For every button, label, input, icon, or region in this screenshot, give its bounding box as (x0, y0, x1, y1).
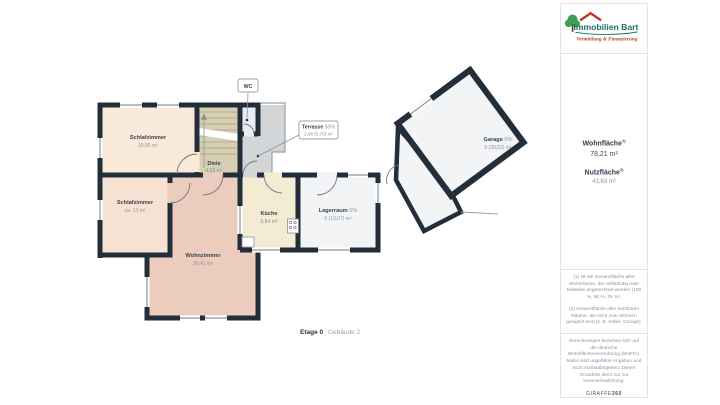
garage-area: 0 (30,62) m² (484, 145, 512, 151)
nutzflaeche-label: Nutzfläche2) (585, 167, 624, 176)
diele-label: Diele (207, 161, 220, 167)
schlafzimmer-2-label: Schlafzimmer (117, 200, 154, 206)
kueche-label: Küche (260, 211, 277, 217)
sink-icon (242, 237, 254, 247)
logo-tagline: Vermittlung & Finanzierung (576, 36, 637, 42)
page: { "branding": { "logo_text": "Immobilien… (0, 0, 720, 405)
floor-plan: Schlafzimmer 15,95 m² Diele 4,03 m² Schl… (0, 0, 560, 405)
footnote-1: (1) Ist die Gesamtfläche aller Wohnräume… (566, 275, 642, 302)
disclaimer-text: Berechnungen beziehen sich auf die deuts… (566, 339, 642, 386)
stove-icon (288, 219, 299, 233)
schlafzimmer-2-area: ca. 13 m² (125, 208, 146, 214)
lagerraum-area: 0 (13,07) m² (324, 216, 352, 222)
company-logo: Immobilien Bart Vermittlung & Finanzieru… (560, 3, 648, 54)
vendor-logo: GIRAFFE360 (566, 391, 642, 397)
disclaimer: Berechnungen beziehen sich auf die deuts… (560, 334, 648, 398)
building-label: Gebäude 2 (328, 329, 361, 336)
lagerraum-label: Lagerraum 0% (319, 208, 358, 214)
area-summary: Wohnfläche1) 78,21 m² Nutzfläche2) 43,63… (560, 54, 648, 270)
footnote-2: (2) Gesamtfläche aller nutzbaren Räume, … (566, 307, 642, 327)
logo-text: Immobilien Bart (573, 21, 638, 31)
wohnflaeche-label: Wohnfläche1) (582, 138, 625, 147)
garage-label: Garage 0% (484, 137, 513, 143)
terrasse-label: Terrasse 50% (302, 125, 335, 131)
floor-caption: Etage 0 Gebäude 2 (300, 329, 361, 336)
nutzflaeche-footnote-ref: 2) (620, 167, 624, 172)
footnotes: (1) Ist die Gesamtfläche aller Wohnräume… (560, 270, 648, 334)
wc-label: WC (244, 84, 253, 90)
floor-label: Etage 0 (300, 329, 324, 336)
schlafzimmer-1-label: Schlafzimmer (130, 135, 167, 141)
nutzflaeche-value: 43,63 m² (592, 179, 616, 185)
room-schlafzimmer-2 (100, 175, 170, 255)
wohnzimmer-label: Wohnzimmer (185, 253, 221, 259)
sidebar: Immobilien Bart Vermittlung & Finanzieru… (560, 3, 648, 398)
wohnflaeche-footnote-ref: 1) (622, 138, 626, 143)
garage-boundary-line (461, 212, 498, 214)
roof-icon (580, 13, 601, 20)
wohnflaeche-value: 78,21 m² (590, 151, 618, 158)
schlafzimmer-1-area: 15,95 m² (138, 143, 158, 149)
wohnzimmer-area: 30,41 m² (193, 261, 213, 267)
room-wc (240, 105, 258, 134)
terrasse-area: 2,88 (5,76) m² (304, 132, 333, 137)
logo-underline (575, 31, 637, 34)
kueche-area: 9,84 m² (261, 219, 278, 225)
diele-area: 4,03 m² (206, 168, 223, 174)
logo-graphic: Immobilien Bart Vermittlung & Finanzieru… (562, 8, 646, 50)
